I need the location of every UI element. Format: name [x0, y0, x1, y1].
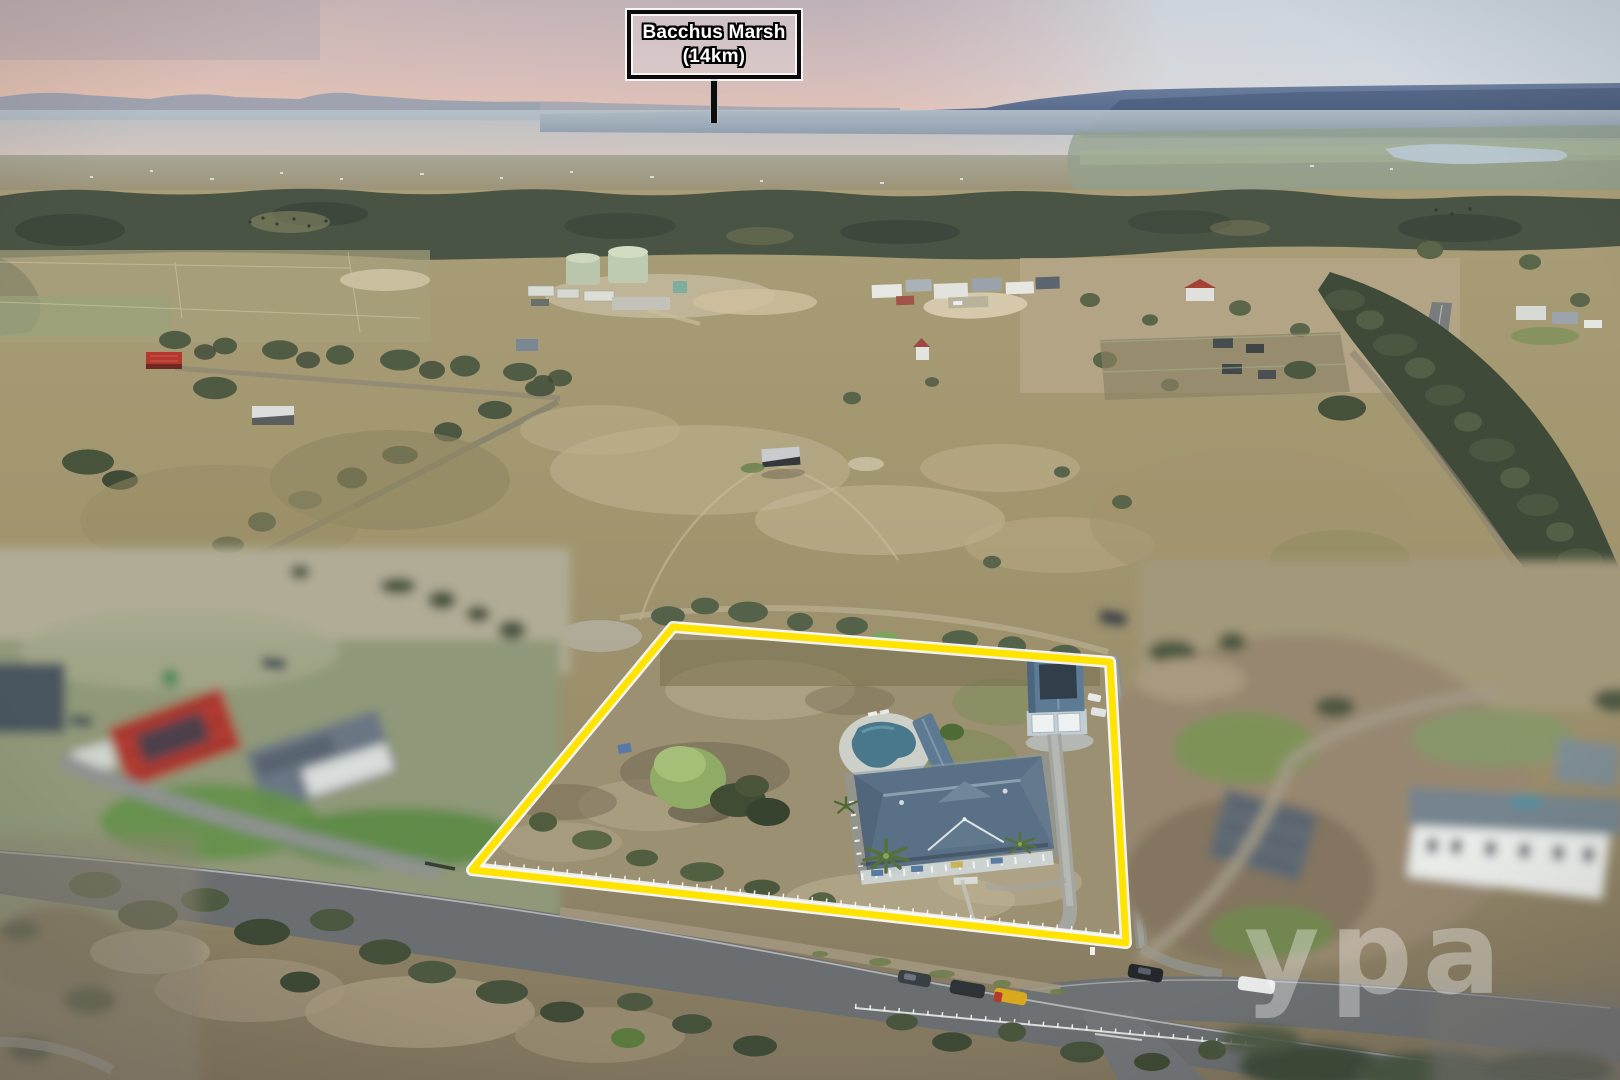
- sign-pole: [710, 79, 718, 123]
- aerial-photo: Bacchus Marsh (14km) ypa: [0, 0, 1620, 1080]
- agency-watermark-logo: ypa: [1244, 896, 1511, 1012]
- sign-line-2: (14km): [633, 45, 795, 69]
- sign-line-1: Bacchus Marsh: [633, 21, 795, 45]
- location-sign: Bacchus Marsh (14km): [627, 10, 801, 123]
- sign-board: Bacchus Marsh (14km): [627, 10, 801, 79]
